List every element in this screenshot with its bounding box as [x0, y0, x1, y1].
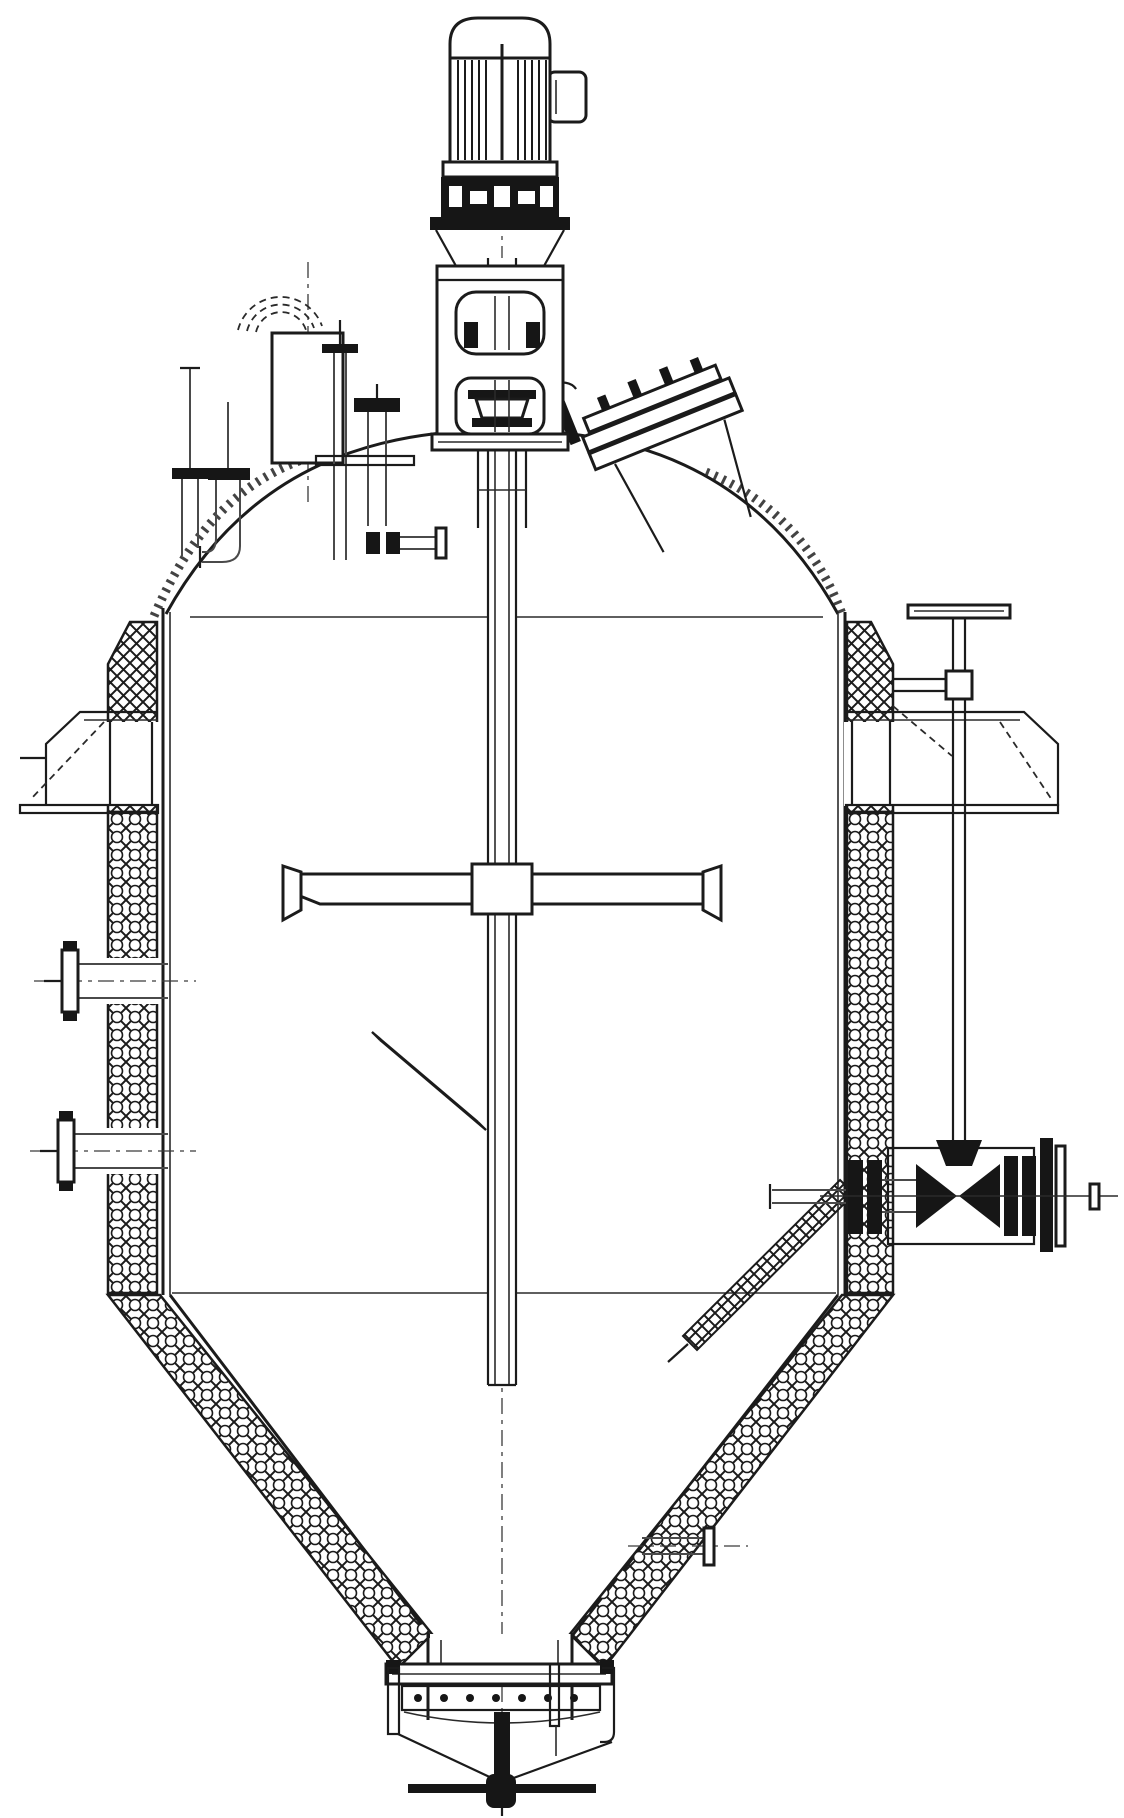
cone-halfcoil-jacket [108, 1295, 432, 1668]
support-lug-right [844, 712, 1058, 813]
cone-halfcoil-jacket-right [570, 1295, 893, 1668]
mechanical-seal [468, 390, 536, 427]
motor-coupling-guard [441, 177, 559, 217]
motor-terminal-box [548, 72, 586, 122]
elbow-drain-nozzle [200, 402, 250, 568]
standpipe-support-bracket [893, 671, 972, 756]
support-lug-left [20, 712, 160, 813]
pitched-bottom-blade [372, 1032, 486, 1130]
paddle-agitator-arm [283, 864, 721, 920]
breather-block [238, 297, 343, 463]
drawing-canvas [0, 0, 1124, 1818]
gooseneck-vent [238, 297, 322, 332]
seal-flush-stub [366, 528, 446, 558]
inclined-manway [539, 321, 780, 572]
bottom-discharge-valve [386, 1660, 614, 1816]
drive-motor [430, 18, 586, 266]
reactor-vessel-drawing [0, 0, 1124, 1818]
